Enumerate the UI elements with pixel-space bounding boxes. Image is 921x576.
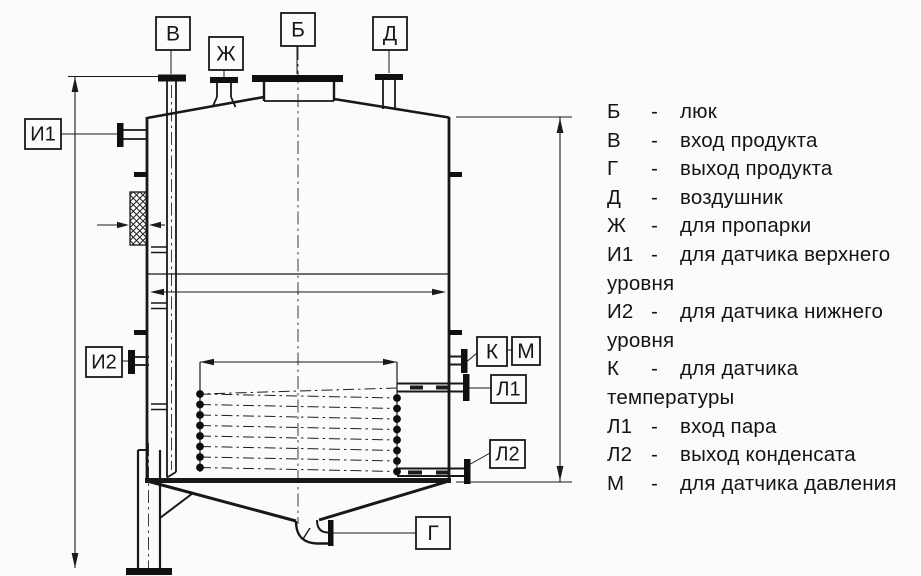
legend-key: Г [607, 155, 651, 184]
legend-text: для датчика [680, 355, 915, 384]
legend-key: Л2 [607, 441, 651, 470]
legend-row-b: Б - люк [607, 98, 915, 127]
label-box-i2: И2 [86, 347, 122, 377]
legend-key: И1 [607, 241, 651, 270]
scanned-drawing-page: В Ж Б Д И1 И2 [0, 0, 921, 576]
legend-row-v: В - вход продукта [607, 127, 915, 156]
label-b: Б [291, 19, 305, 42]
legend-row-i2-cont: уровня [607, 327, 915, 356]
legend-separator: - [651, 441, 680, 470]
label-v: В [166, 23, 180, 46]
legend-key: М [607, 470, 651, 499]
label-box-v: В [156, 17, 190, 50]
nozzle-i1 [117, 123, 148, 147]
legend-text: выход продукта [680, 155, 915, 184]
legend-row-i1-cont: уровня [607, 270, 915, 299]
nozzle-v-dip-pipe [151, 75, 186, 478]
outlet-g-elbow [296, 520, 334, 546]
label-box-k: К [477, 337, 507, 366]
legend-row-k: К - для датчика [607, 355, 915, 384]
legend-separator: - [651, 298, 680, 327]
legend-text: люк [680, 98, 915, 127]
dimension-shell-height [456, 117, 572, 482]
label-box-l2: Л2 [490, 440, 525, 468]
label-l1: Л1 [496, 379, 520, 401]
legend-text: для датчика верхнего [680, 241, 915, 270]
legend-text: воздушник [680, 184, 915, 213]
legend-text: для датчика нижнего [680, 298, 915, 327]
legend-text: выход конденсата [680, 441, 915, 470]
legend-separator: - [651, 241, 680, 270]
legend-row-i1: И1 - для датчика верхнего [607, 241, 915, 270]
legend-row-g: Г - выход продукта [607, 155, 915, 184]
legend-row-zh: Ж - для пропарки [607, 212, 915, 241]
label-l2: Л2 [495, 444, 519, 466]
legend-key: Д [607, 184, 651, 213]
label-box-i1: И1 [25, 119, 61, 149]
legend-continuation: уровня [607, 270, 674, 299]
legend-separator: - [651, 212, 680, 241]
label-m: М [517, 340, 535, 363]
label-box-b: Б [281, 13, 315, 46]
label-box-d: Д [373, 17, 407, 50]
label-k: К [486, 341, 499, 364]
legend-text: для пропарки [680, 212, 915, 241]
label-i1: И1 [30, 124, 56, 146]
nozzle-k-m [449, 349, 468, 373]
legend-separator: - [651, 184, 680, 213]
legend-key: К [607, 355, 651, 384]
legend-text: для датчика давления [680, 470, 915, 499]
manhole-b [252, 75, 343, 101]
legend: Б - люк В - вход продукта Г - выход прод… [607, 98, 915, 498]
label-zh: Ж [216, 43, 236, 66]
legend-separator: - [651, 155, 680, 184]
label-box-m: М [512, 337, 540, 365]
legend-separator: - [651, 470, 680, 499]
legend-separator: - [651, 127, 680, 156]
legend-separator: - [651, 355, 680, 384]
legend-text: вход продукта [680, 127, 915, 156]
dimension-overall-height [68, 77, 166, 569]
legend-continuation: уровня [607, 327, 674, 356]
legend-key: И2 [607, 298, 651, 327]
legend-key: Ж [607, 212, 651, 241]
label-d: Д [383, 23, 397, 46]
centerlines [149, 47, 299, 575]
legend-key: В [607, 127, 651, 156]
nozzle-l1 [397, 374, 470, 401]
legend-row-m: М - для датчика давления [607, 470, 915, 499]
leader-lines [56, 46, 512, 533]
wall-hatched-detail [97, 192, 165, 245]
legend-row-l2: Л2 - выход конденсата [607, 441, 915, 470]
label-i2: И2 [91, 352, 117, 374]
legend-row-d: Д - воздушник [607, 184, 915, 213]
legend-continuation: температуры [607, 384, 734, 413]
legend-separator: - [651, 98, 680, 127]
legend-row-k-cont: температуры [607, 384, 915, 413]
support-leg [126, 450, 193, 575]
legend-text: вход пара [680, 413, 915, 442]
legend-separator: - [651, 413, 680, 442]
legend-row-i2: И2 - для датчика нижнего [607, 298, 915, 327]
label-box-zh: Ж [209, 37, 243, 70]
vessel-technical-drawing: В Ж Б Д И1 И2 [0, 0, 580, 576]
nozzle-d [375, 74, 403, 109]
nozzle-zh [210, 77, 238, 107]
label-box-g: Г [416, 517, 450, 549]
legend-row-l1: Л1 - вход пара [607, 413, 915, 442]
heating-coil [196, 359, 401, 476]
label-box-l1: Л1 [491, 375, 526, 403]
legend-key: Л1 [607, 413, 651, 442]
label-g: Г [427, 522, 438, 545]
legend-key: Б [607, 98, 651, 127]
